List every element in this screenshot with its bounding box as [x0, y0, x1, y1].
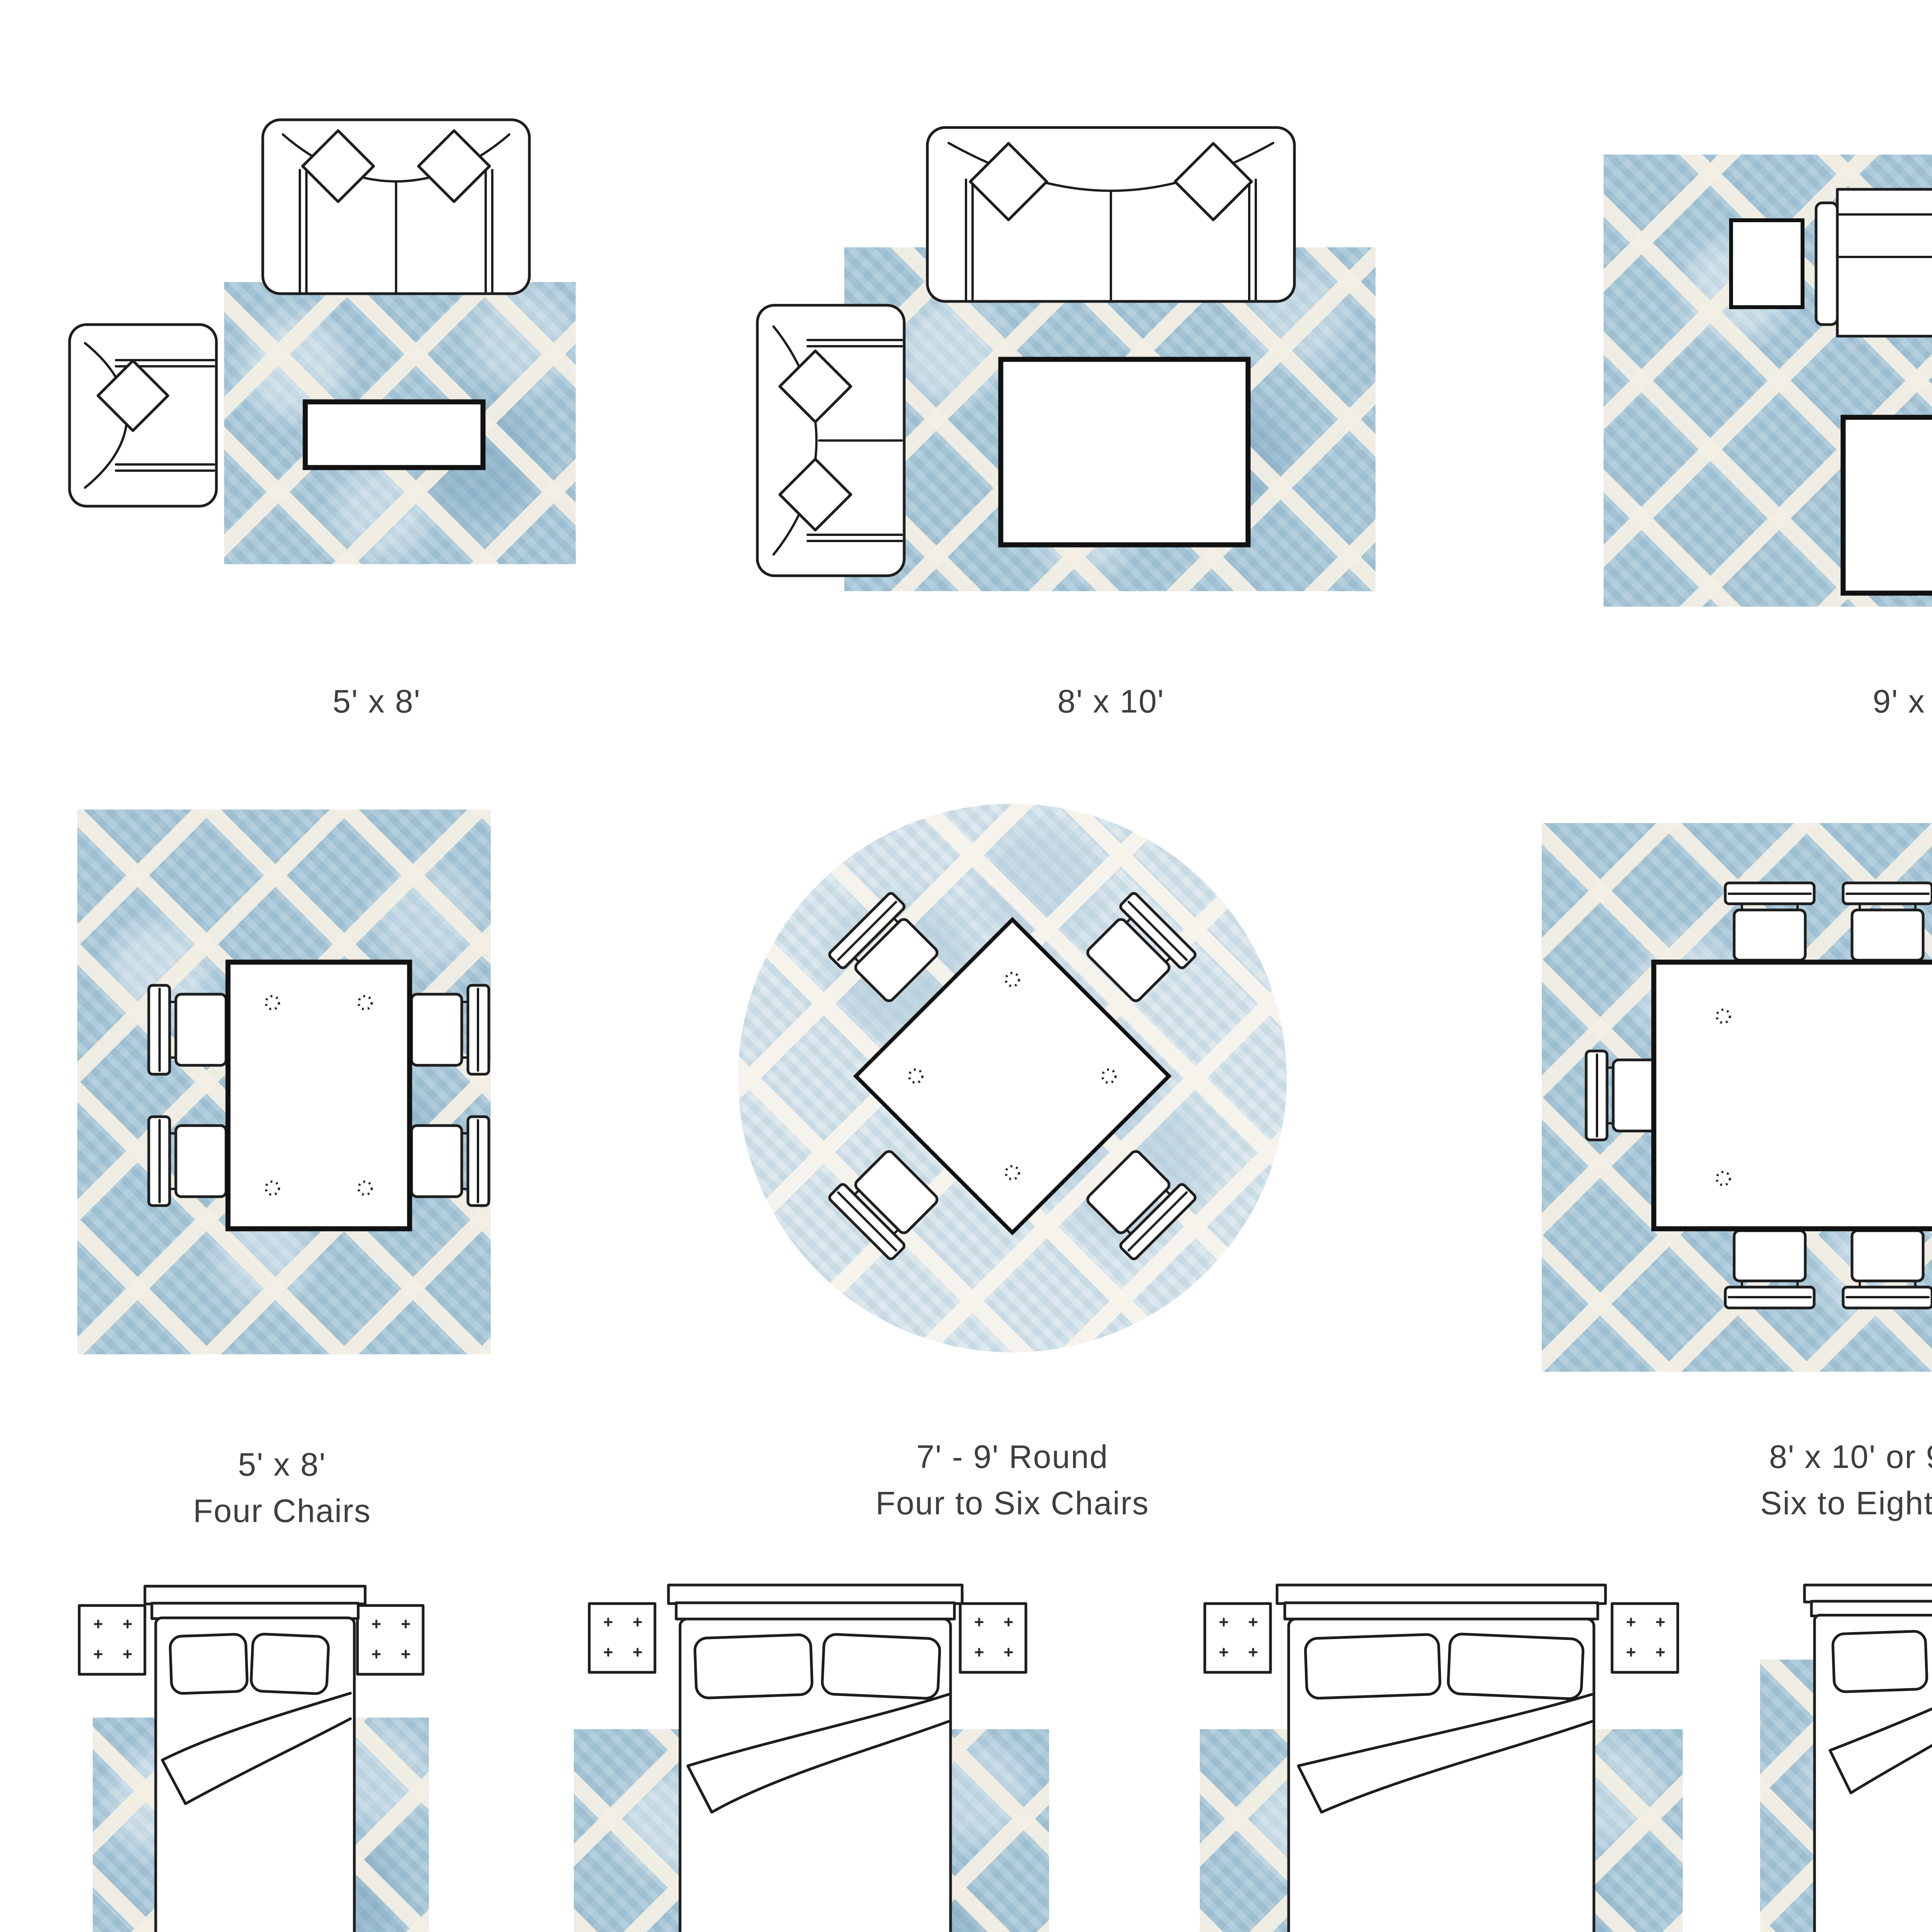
nightstand-icon: [960, 1604, 1026, 1672]
living-9x12-furniture: [1584, 116, 1932, 618]
nightstand-icon: [1612, 1604, 1678, 1672]
twin-bed-icon: [1804, 1585, 1932, 1932]
sofa-icon: [927, 128, 1294, 301]
dining-round-furniture: [734, 800, 1291, 1356]
bed-twin-furniture: [1754, 1565, 1932, 1932]
rug-size-guide-page: { "page": { "title": "Rug Size Guide", "…: [0, 0, 1932, 1932]
dining-table-icon: [228, 962, 410, 1229]
coffee-table-icon: [1001, 359, 1248, 545]
label-living-8x10: 8' x 10': [1058, 678, 1165, 724]
label-line: 5' x 8': [333, 678, 421, 724]
dining-9x12-furniture: [1534, 815, 1932, 1379]
loveseat-icon: [757, 305, 904, 576]
nightstand-icon: [357, 1605, 423, 1674]
coffee-table-icon: [1843, 417, 1932, 593]
scene-bed-king: 8' x 10' or 9' x 12' King Size Bed: [1194, 1565, 1689, 1932]
dining-chair-icon: [1725, 883, 1814, 960]
scene-living-5x8: 5' x 8': [58, 108, 607, 572]
label-line: Four Chairs: [193, 1488, 371, 1534]
dining-chair-icon: [412, 985, 489, 1074]
dining-5x8-furniture: [50, 804, 514, 1360]
dining-chair-icon: [1725, 1231, 1814, 1308]
dining-chair-icon: [1843, 883, 1932, 960]
king-bed-icon: [1277, 1585, 1605, 1932]
bed-full-furniture: [58, 1565, 444, 1932]
label-dining-round: 7' - 9' Round Four to Six Chairs: [876, 1434, 1149, 1526]
scene-dining-9x12: 8' x 10' or 9' x 12' Six to Eight Chairs: [1534, 815, 1932, 1379]
label-line: 5' x 8': [193, 1441, 371, 1488]
label-living-5x8: 5' x 8': [333, 678, 421, 724]
scene-dining-round: 7' - 9' Round Four to Six Chairs: [734, 800, 1291, 1356]
label-line: 7' - 9' Round: [876, 1434, 1149, 1480]
nightstand-icon: [589, 1604, 655, 1672]
living-5x8-furniture: [58, 108, 607, 572]
queen-bed-icon: [668, 1585, 962, 1932]
nightstand-icon: [1205, 1604, 1270, 1672]
dining-chair-icon: [828, 1143, 946, 1260]
nightstand-icon: [79, 1605, 145, 1674]
coffee-table-icon: [305, 402, 483, 468]
bed-queen-furniture: [560, 1565, 1055, 1932]
side-table-icon: [1731, 220, 1803, 307]
label-living-9x12: 9' x 12': [1873, 678, 1932, 724]
label-line: Six to Eight Chairs: [1760, 1480, 1932, 1526]
scene-living-9x12: 9' x 12': [1584, 116, 1932, 618]
dining-chair-icon: [1843, 1231, 1932, 1308]
dining-chair-icon: [412, 1117, 489, 1206]
label-dining-5x8: 5' x 8' Four Chairs: [193, 1441, 371, 1534]
bed-king-furniture: [1194, 1565, 1689, 1932]
armchair-icon: [70, 325, 216, 506]
scene-bed-twin: 9' x 12' Twin Bed: [1754, 1565, 1932, 1932]
scene-bed-full: 5' x 8' Full Size Bed: [58, 1565, 444, 1932]
dining-chair-icon: [1079, 1143, 1197, 1260]
label-line: Four to Six Chairs: [876, 1480, 1149, 1526]
scene-bed-queen: 8' x 10' or 9' x 12' Queen Size Bed: [560, 1565, 1055, 1932]
dining-chair-icon: [149, 985, 226, 1074]
dining-table-icon: [1654, 962, 1932, 1229]
sofa-icon: [263, 120, 529, 294]
label-dining-9x12: 8' x 10' or 9' x 12' Six to Eight Chairs: [1760, 1434, 1932, 1526]
scene-living-8x10: 8' x 10': [734, 108, 1410, 603]
label-line: 8' x 10' or 9' x 12': [1760, 1434, 1932, 1480]
dining-chair-icon: [149, 1117, 226, 1206]
label-line: 9' x 12': [1873, 678, 1932, 724]
dining-chair-icon: [828, 892, 946, 1009]
full-bed-icon: [145, 1586, 365, 1932]
living-8x10-furniture: [734, 108, 1410, 603]
dining-chair-icon: [1079, 892, 1197, 1009]
label-line: 8' x 10': [1058, 678, 1165, 724]
scene-dining-5x8: 5' x 8' Four Chairs: [50, 804, 514, 1360]
